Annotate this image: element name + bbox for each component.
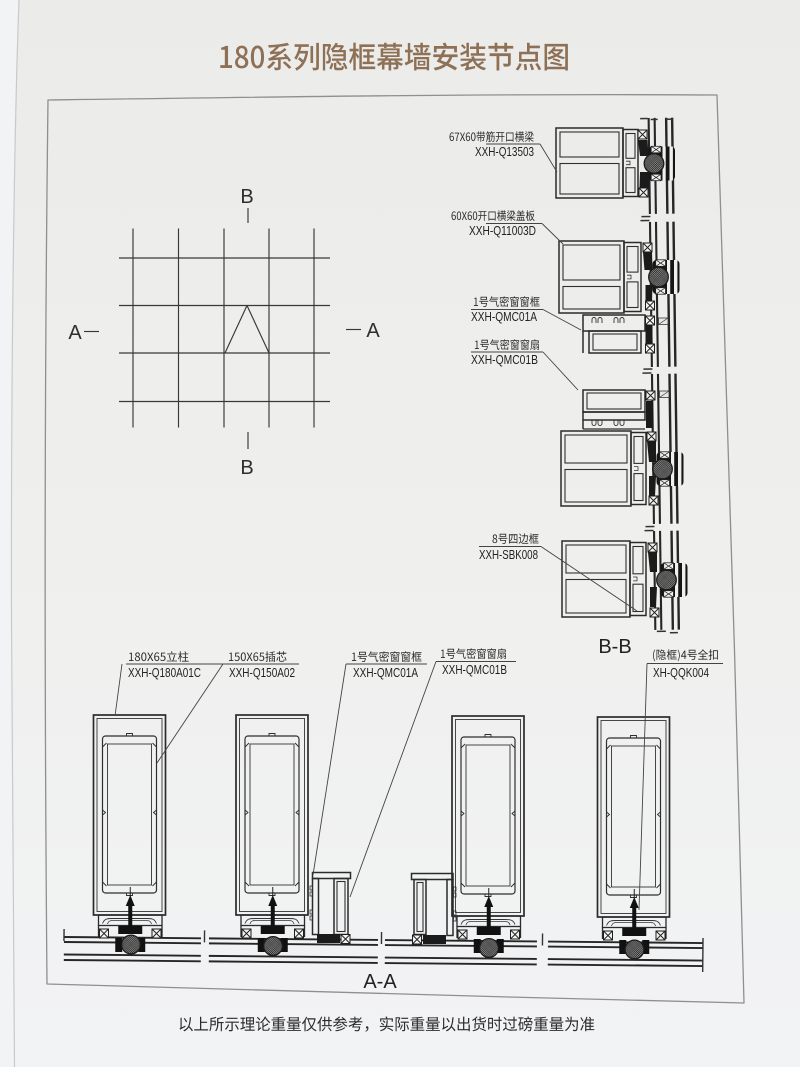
svg-text:B-B: B-B: [598, 636, 631, 658]
svg-text:XH-QQK004: XH-QQK004: [653, 666, 709, 680]
svg-text:A: A: [366, 320, 380, 342]
svg-text:XXH-Q13503: XXH-Q13503: [475, 145, 534, 159]
svg-text:XXH-QMC01B: XXH-QMC01B: [471, 353, 538, 367]
svg-text:A-A: A-A: [363, 971, 397, 993]
svg-text:XXH-QMC01A: XXH-QMC01A: [471, 310, 538, 324]
svg-text:XXH-SBK008: XXH-SBK008: [479, 548, 538, 562]
svg-text:XXH-Q11003D: XXH-Q11003D: [469, 224, 536, 238]
svg-text:XXH-QMC01B: XXH-QMC01B: [442, 663, 507, 677]
svg-text:XXH-Q180A01C: XXH-Q180A01C: [128, 666, 201, 680]
svg-text:A: A: [68, 322, 82, 344]
svg-text:B: B: [240, 186, 253, 208]
svg-text:XXH-Q150A02: XXH-Q150A02: [229, 666, 295, 680]
svg-text:XXH-QMC01A: XXH-QMC01A: [353, 666, 419, 680]
svg-text:B: B: [240, 457, 253, 479]
